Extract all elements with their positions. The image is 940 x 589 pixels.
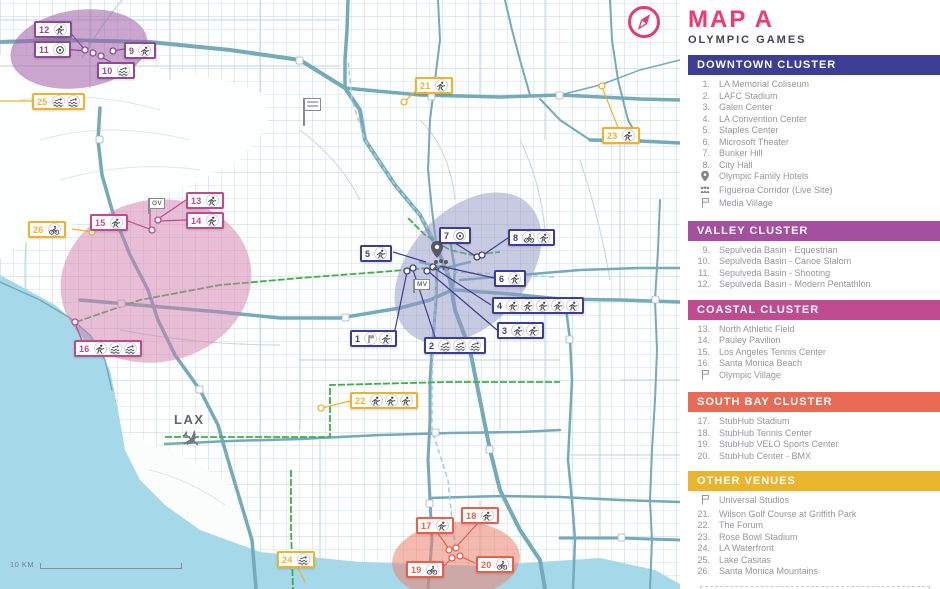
venue-marker-9: 9 bbox=[124, 42, 156, 59]
map-scale-bar: 10 KM bbox=[10, 560, 182, 569]
marker-number: 19 bbox=[411, 565, 424, 575]
map-leader-lines bbox=[0, 0, 680, 589]
pin-icon bbox=[688, 171, 710, 185]
bmx-icon bbox=[496, 558, 509, 571]
venue-marker-19: 19 bbox=[406, 561, 444, 578]
southbay-venue-list: 17.StubHub Stadium18.StubHub Tennis Cent… bbox=[688, 416, 940, 462]
venue-marker-26: 26 bbox=[28, 221, 66, 238]
rugby-icon bbox=[206, 194, 219, 207]
lax-airport-label: LAX ✈ bbox=[174, 412, 205, 455]
venue-list-item: Media Village bbox=[688, 198, 940, 212]
venue-label: Universal Studios bbox=[710, 495, 789, 509]
marker-number: 6 bbox=[499, 274, 506, 284]
venue-label: The Forum bbox=[710, 520, 763, 532]
venue-list-item: 23.Rose Bowl Stadium bbox=[688, 532, 940, 544]
olympic-map-page: MV OV LAX ✈ 10 KM bbox=[0, 0, 940, 589]
venue-label: City Hall bbox=[710, 160, 753, 172]
venue-list-item: 6.Microsoft Theater bbox=[688, 137, 940, 149]
marker-number: 24 bbox=[282, 555, 295, 565]
venue-label: Los Angeles Tennis Center bbox=[710, 347, 826, 359]
marker-number: 18 bbox=[466, 511, 479, 521]
open-water-swimming-icon bbox=[109, 342, 122, 355]
venue-label: Olympic Village bbox=[710, 370, 781, 384]
venue-list-item: 24.LA Waterfront bbox=[688, 543, 940, 555]
boxing-icon bbox=[566, 299, 579, 312]
fencing-icon bbox=[521, 299, 534, 312]
mountain-bike-icon bbox=[48, 223, 61, 236]
venue-list-item: 5.Staples Center bbox=[688, 125, 940, 137]
beach-volleyball-icon bbox=[94, 342, 107, 355]
sailing-icon bbox=[297, 553, 310, 566]
venue-label: Sepulveda Basin - Equestrian bbox=[710, 245, 838, 257]
venue-marker-23: 23 bbox=[602, 127, 640, 144]
other-venue-list: Universal Studios21.Wilson Golf Course a… bbox=[688, 495, 940, 578]
flag-icon bbox=[688, 198, 710, 212]
venue-marker-17: 17 bbox=[416, 517, 454, 534]
canoe-sprint-icon bbox=[67, 95, 80, 108]
marker-number: 9 bbox=[129, 46, 136, 56]
venue-marker-16: 16 bbox=[74, 340, 142, 357]
cluster-section-southbay: SOUTH BAY CLUSTER 17.StubHub Stadium18.S… bbox=[688, 392, 940, 462]
badminton-icon bbox=[511, 324, 524, 337]
venue-list-item: 26.Santa Monica Mountains bbox=[688, 566, 940, 578]
marker-number: 8 bbox=[513, 233, 520, 243]
marker-number: 5 bbox=[365, 249, 372, 259]
venue-list-item: 10.Sepulveda Basin - Canoe Slalom bbox=[688, 256, 940, 268]
venue-marker-3: 3 bbox=[497, 322, 544, 339]
modern-pentathlon-icon bbox=[54, 23, 67, 36]
venue-list-item: 13.North Athletic Field bbox=[688, 324, 940, 336]
venue-label: Media Village bbox=[710, 198, 773, 212]
venue-label: Wilson Golf Course at Griffith Park bbox=[710, 509, 856, 521]
marker-number: 26 bbox=[33, 225, 46, 235]
marker-number: 2 bbox=[429, 341, 436, 351]
marker-number: 15 bbox=[95, 218, 108, 228]
shooting-icon bbox=[53, 43, 66, 56]
marker-number: 7 bbox=[444, 231, 451, 241]
venue-marker-2: 2 bbox=[424, 337, 486, 354]
venue-list-item: Olympic Family Hotels bbox=[688, 171, 940, 185]
venue-list-item: 4.LA Convention Center bbox=[688, 114, 940, 126]
southbay-cluster-header: SOUTH BAY CLUSTER bbox=[688, 392, 940, 412]
venue-label: LA Convention Center bbox=[710, 114, 807, 126]
venue-list-item: 19.StubHub VELO Sports Center bbox=[688, 439, 940, 451]
venue-list-item: 1.LA Memorial Coliseum bbox=[688, 79, 940, 91]
venue-label: Staples Center bbox=[710, 125, 779, 137]
triathlon-icon bbox=[124, 342, 137, 355]
cluster-section-valley: VALLEY CLUSTER 9.Sepulveda Basin - Eques… bbox=[688, 221, 940, 291]
venue-list-item: Olympic Village bbox=[688, 370, 940, 384]
judo-icon bbox=[536, 299, 549, 312]
coastal-cluster-header: COASTAL CLUSTER bbox=[688, 300, 940, 320]
football-icon bbox=[622, 129, 635, 142]
marker-number: 11 bbox=[39, 45, 51, 55]
marker-number: 21 bbox=[420, 81, 433, 91]
venue-label: Olympic Family Hotels bbox=[710, 171, 809, 185]
basketball-icon bbox=[400, 394, 413, 407]
marker-number: 14 bbox=[191, 216, 204, 226]
equestrian-icon bbox=[138, 44, 151, 57]
cluster-section-coastal: COASTAL CLUSTER 13.North Athletic Field1… bbox=[688, 300, 940, 384]
valley-venue-list: 9.Sepulveda Basin - Equestrian10.Sepulve… bbox=[688, 245, 940, 291]
venue-marker-13: 13 bbox=[186, 192, 224, 209]
venue-label: Santa Monica Beach bbox=[710, 358, 802, 370]
airplane-icon: ✈ bbox=[173, 422, 208, 458]
canoe-slalom-icon bbox=[117, 64, 130, 77]
venue-list-item: 15.Los Angeles Tennis Center bbox=[688, 347, 940, 359]
cluster-section-other: OTHER VENUES Universal Studios21.Wilson … bbox=[688, 471, 940, 578]
flag-icon bbox=[688, 370, 710, 384]
venue-marker-7: 7 bbox=[439, 227, 471, 244]
venue-marker-1: 1 bbox=[350, 330, 397, 347]
venue-label: Rose Bowl Stadium bbox=[710, 532, 798, 544]
venue-label: Pauley Pavilion bbox=[710, 335, 781, 347]
track-cycling-icon bbox=[426, 563, 439, 576]
venue-marker-12: 12 bbox=[34, 21, 72, 38]
scale-bracket bbox=[40, 563, 182, 569]
venue-list-item: 7.Bunker Hill bbox=[688, 148, 940, 160]
downtown-venue-list: 1.LA Memorial Coliseum2.LAFC Stadium3.Ga… bbox=[688, 79, 940, 212]
venue-marker-5: 5 bbox=[360, 245, 392, 262]
flag-icon bbox=[688, 495, 710, 509]
venue-label: StubHub Center - BMX bbox=[710, 451, 811, 463]
venue-marker-22: 22 bbox=[350, 392, 418, 409]
crowd-icon bbox=[688, 185, 710, 199]
wrestling-icon bbox=[526, 324, 539, 337]
soccer-icon bbox=[436, 519, 449, 532]
venue-list-item: Universal Studios bbox=[688, 495, 940, 509]
venue-list-item: 18.StubHub Tennis Center bbox=[688, 428, 940, 440]
marker-number: 3 bbox=[502, 326, 509, 336]
venue-label: StubHub VELO Sports Center bbox=[710, 439, 839, 451]
table-tennis-icon bbox=[506, 299, 519, 312]
venue-list-item: 2.LAFC Stadium bbox=[688, 91, 940, 103]
venue-label: StubHub Tennis Center bbox=[710, 428, 812, 440]
venue-label: LAFC Stadium bbox=[710, 91, 778, 103]
marker-number: 10 bbox=[102, 66, 115, 76]
swimming-icon bbox=[468, 339, 481, 352]
cycling-road-icon bbox=[522, 231, 535, 244]
marker-number: 25 bbox=[37, 97, 50, 107]
volleyball-icon bbox=[206, 214, 219, 227]
venue-list-item: 25.Lake Casitas bbox=[688, 555, 940, 567]
marker-number: 20 bbox=[481, 560, 494, 570]
venue-marker-4: 4 bbox=[492, 297, 584, 314]
venue-marker-10: 10 bbox=[97, 62, 135, 79]
legend-panel: MAP A OLYMPIC GAMES DOWNTOWN CLUSTER 1.L… bbox=[680, 0, 940, 589]
marathon-icon bbox=[537, 231, 550, 244]
venue-label: Santa Monica Mountains bbox=[710, 566, 818, 578]
venue-label: StubHub Stadium bbox=[710, 416, 790, 428]
marker-number: 1 bbox=[355, 334, 362, 344]
water-polo-icon bbox=[438, 339, 451, 352]
diving-icon bbox=[453, 339, 466, 352]
ceremonies-flag-icon bbox=[364, 332, 377, 345]
other-venues-header: OTHER VENUES bbox=[688, 471, 940, 491]
venue-marker-25: 25 bbox=[32, 93, 85, 110]
venue-label: LA Memorial Coliseum bbox=[710, 79, 809, 91]
venue-marker-14: 14 bbox=[186, 212, 224, 229]
venue-list-item: 16.Santa Monica Beach bbox=[688, 358, 940, 370]
venue-list-item: 8.City Hall bbox=[688, 160, 940, 172]
marker-number: 4 bbox=[497, 301, 504, 311]
venue-label: Sepulveda Basin - Shooting bbox=[710, 268, 830, 280]
venue-label: Sepulveda Basin - Canoe Slalom bbox=[710, 256, 851, 268]
venue-label: Figueroa Corridor (Live Site) bbox=[710, 185, 833, 199]
venue-marker-8: 8 bbox=[508, 229, 555, 246]
tennis-icon bbox=[481, 509, 494, 522]
compass-north-icon bbox=[628, 6, 660, 38]
taekwondo-icon bbox=[551, 299, 564, 312]
golf-icon bbox=[435, 79, 448, 92]
tennis-icon bbox=[110, 216, 123, 229]
venue-label: North Athletic Field bbox=[710, 324, 795, 336]
page-subtitle: OLYMPIC GAMES bbox=[688, 34, 940, 46]
marker-number: 22 bbox=[355, 396, 368, 406]
gymnastics-icon bbox=[370, 394, 383, 407]
venue-marker-18: 18 bbox=[461, 507, 499, 524]
coastal-venue-list: 13.North Athletic Field14.Pauley Pavilio… bbox=[688, 324, 940, 384]
page-title: MAP A bbox=[688, 8, 940, 32]
weightlifting-icon bbox=[508, 272, 521, 285]
archery-icon bbox=[453, 229, 466, 242]
venue-label: Bunker Hill bbox=[710, 148, 763, 160]
venue-marker-24: 24 bbox=[277, 551, 315, 568]
marker-number: 23 bbox=[607, 131, 620, 141]
downtown-cluster-header: DOWNTOWN CLUSTER bbox=[688, 55, 940, 75]
venue-label: Galen Center bbox=[710, 102, 773, 114]
athletics-icon bbox=[379, 332, 392, 345]
venue-list-item: Figueroa Corridor (Live Site) bbox=[688, 185, 940, 199]
venue-list-item: 17.StubHub Stadium bbox=[688, 416, 940, 428]
scale-label: 10 KM bbox=[10, 560, 34, 569]
venue-list-item: 21.Wilson Golf Course at Griffith Park bbox=[688, 509, 940, 521]
marker-number: 17 bbox=[421, 521, 434, 531]
cluster-section-downtown: DOWNTOWN CLUSTER 1.LA Memorial Coliseum2… bbox=[688, 55, 940, 212]
venue-label: Microsoft Theater bbox=[710, 137, 789, 149]
olympic-village-label: OV bbox=[149, 198, 165, 209]
venue-marker-11: 11 bbox=[34, 41, 71, 58]
venue-list-item: 14.Pauley Pavilion bbox=[688, 335, 940, 347]
venue-list-item: 22.The Forum bbox=[688, 520, 940, 532]
venue-label: Lake Casitas bbox=[710, 555, 771, 567]
valley-cluster-header: VALLEY CLUSTER bbox=[688, 221, 940, 241]
venue-marker-15: 15 bbox=[90, 214, 128, 231]
basketball-icon bbox=[374, 247, 387, 260]
venue-list-item: 11.Sepulveda Basin - Shooting bbox=[688, 268, 940, 280]
media-village-label: MV bbox=[414, 279, 430, 290]
venue-label: Sepulveda Basin - Modern Pentathlon bbox=[710, 279, 871, 291]
marker-number: 13 bbox=[191, 196, 204, 206]
venue-marker-6: 6 bbox=[494, 270, 526, 287]
marker-number: 16 bbox=[79, 344, 92, 354]
venue-marker-21: 21 bbox=[415, 77, 453, 94]
venue-list-item: 3.Galen Center bbox=[688, 102, 940, 114]
venue-list-item: 9.Sepulveda Basin - Equestrian bbox=[688, 245, 940, 257]
venue-marker-20: 20 bbox=[476, 556, 514, 573]
venue-list-item: 12.Sepulveda Basin - Modern Pentathlon bbox=[688, 279, 940, 291]
map-canvas: MV OV LAX ✈ 10 KM bbox=[0, 0, 680, 589]
venue-list-item: 20.StubHub Center - BMX bbox=[688, 451, 940, 463]
venue-label: LA Waterfront bbox=[710, 543, 774, 555]
trampoline-icon bbox=[385, 394, 398, 407]
marker-number: 12 bbox=[39, 25, 52, 35]
infrastructure-legend: # EXISTING INFRASTRUCTURE FROM TABLE 50A… bbox=[700, 586, 930, 589]
rowing-icon bbox=[52, 95, 65, 108]
